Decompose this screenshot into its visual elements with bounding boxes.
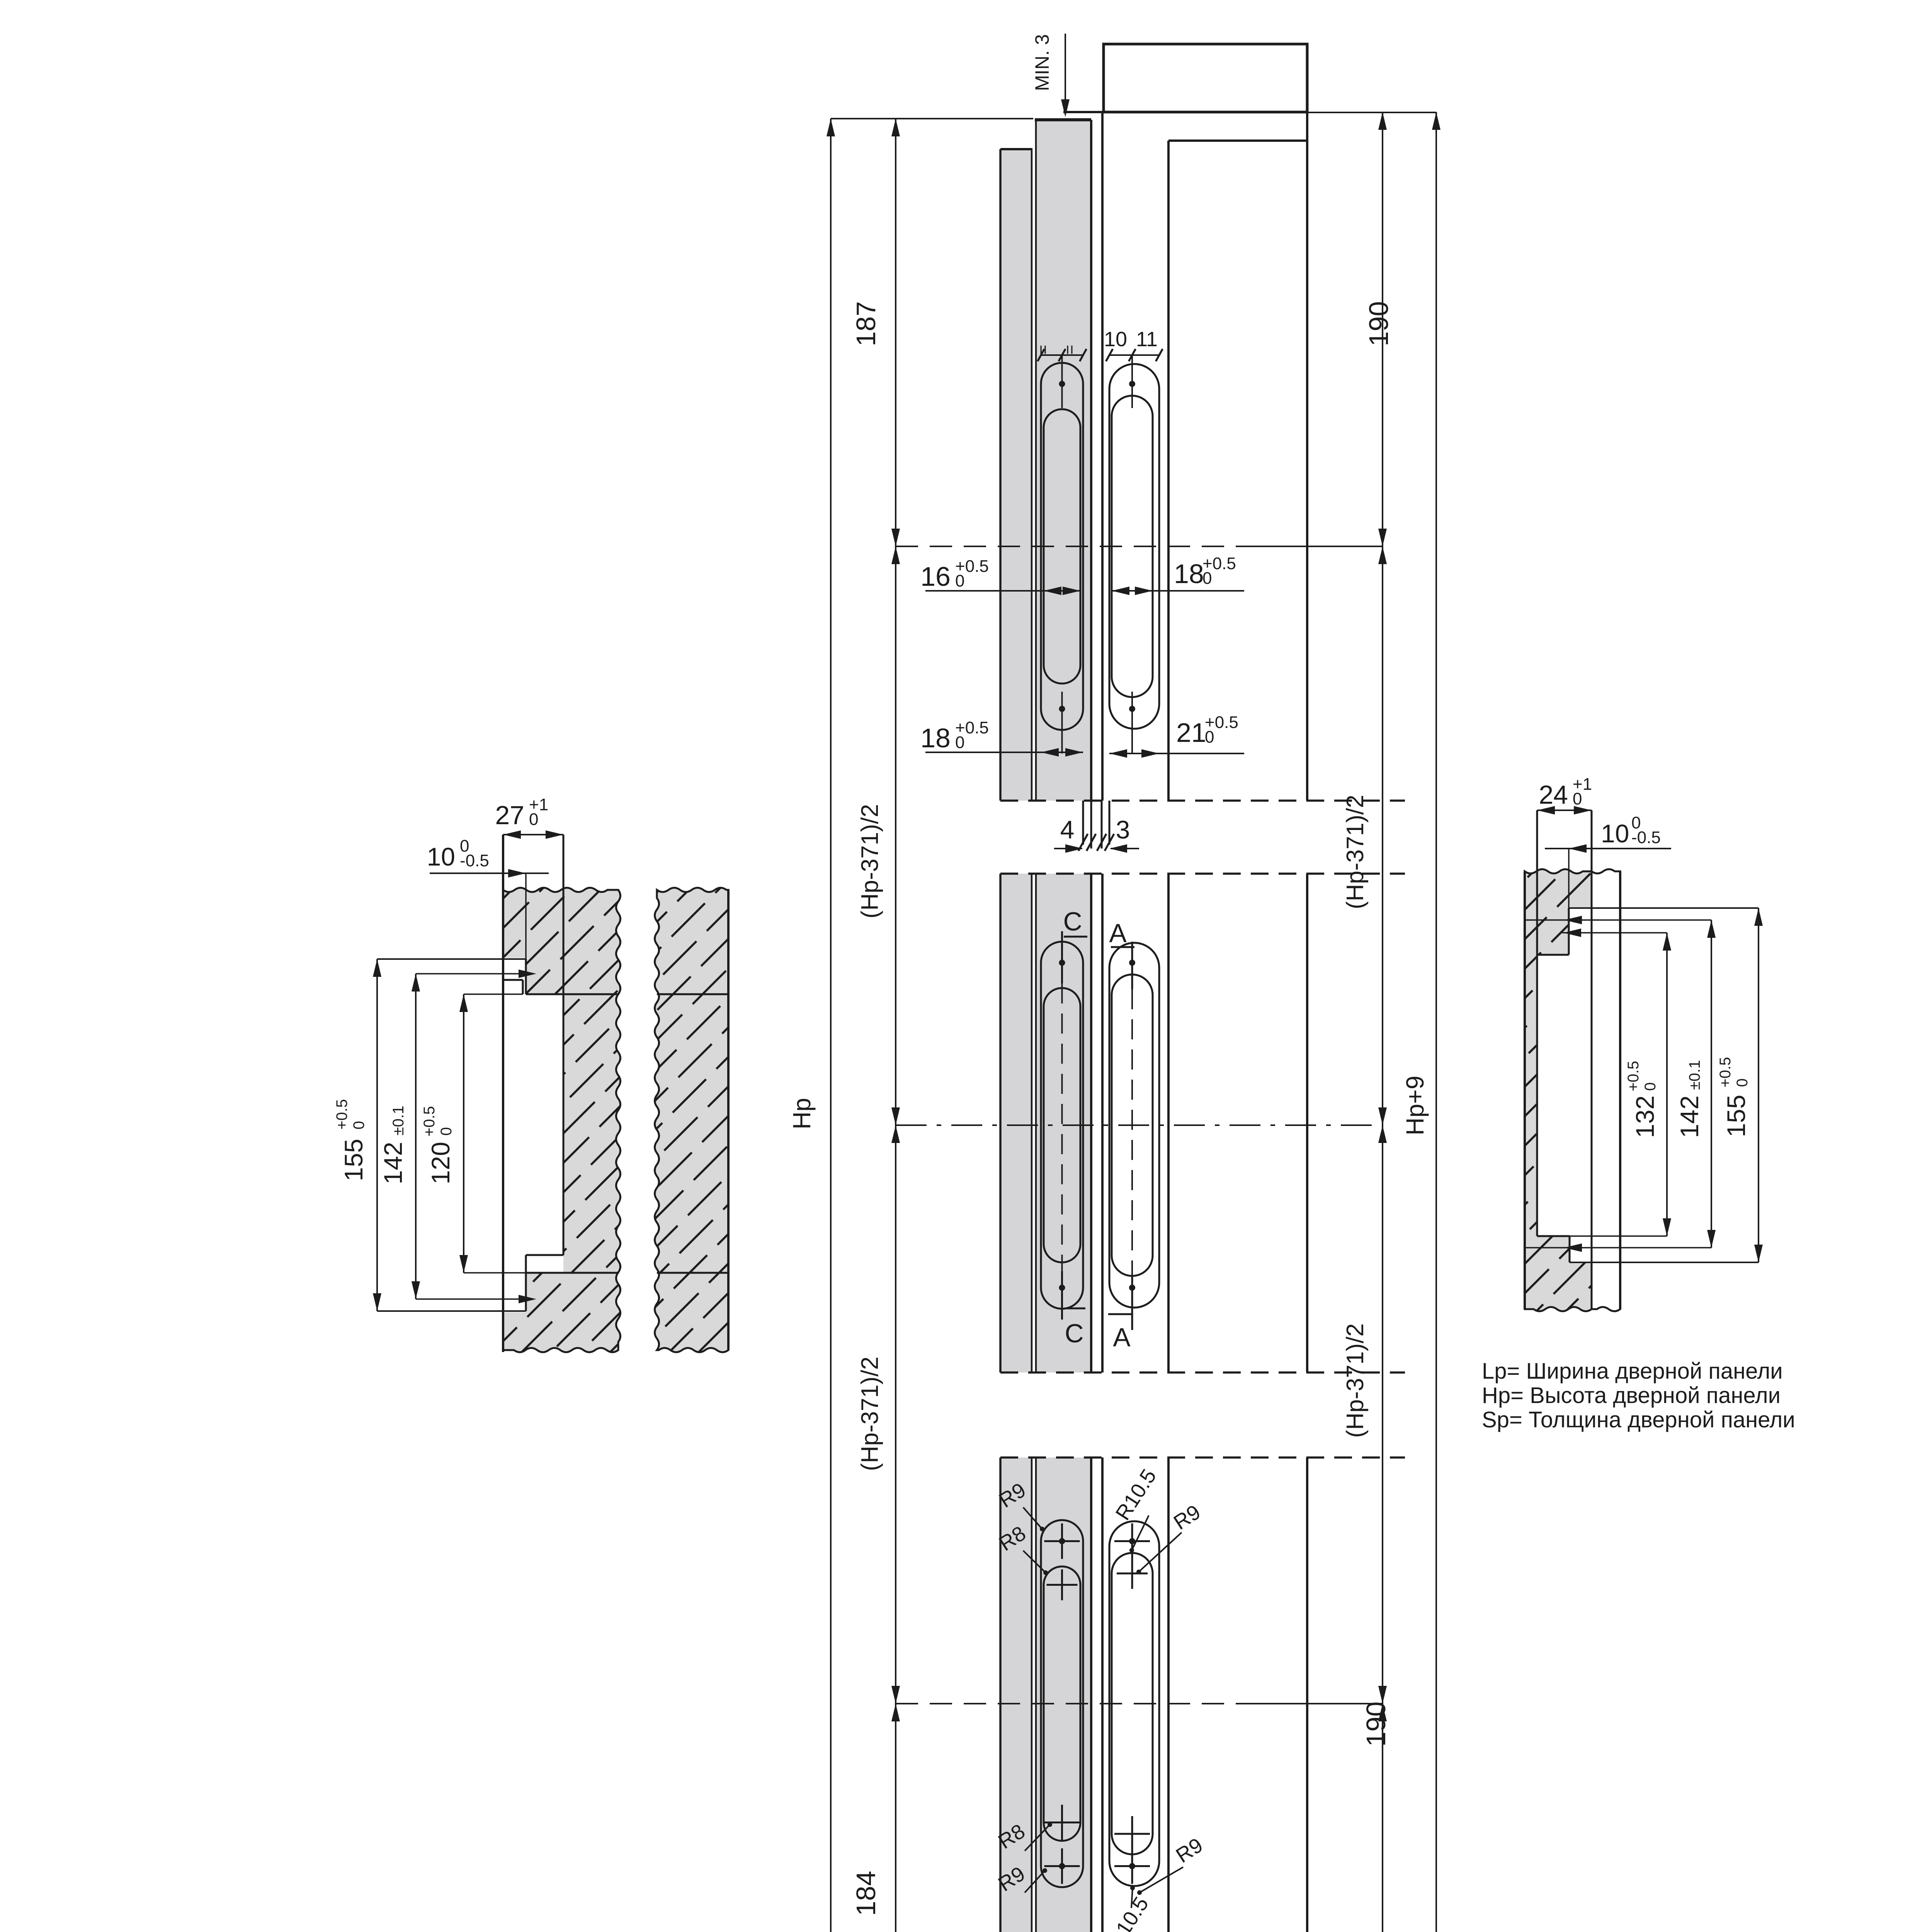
svg-text:27: 27 xyxy=(495,801,524,830)
svg-text:0: 0 xyxy=(955,733,964,752)
svg-text:120: 120 xyxy=(426,1142,455,1184)
svg-text:(Hp-371)/2: (Hp-371)/2 xyxy=(1342,795,1369,909)
svg-text:0: 0 xyxy=(1734,1078,1751,1087)
svg-text:Lp= Ширина дверной панели: Lp= Ширина дверной панели xyxy=(1482,1359,1783,1384)
svg-text:18: 18 xyxy=(920,723,951,753)
svg-text:142: 142 xyxy=(379,1142,407,1184)
svg-text:0: 0 xyxy=(1642,1082,1659,1091)
svg-text:155: 155 xyxy=(1722,1095,1750,1137)
svg-text:Sp= Толщина дверной панели: Sp= Толщина дверной панели xyxy=(1482,1407,1795,1432)
svg-text:+0.5: +0.5 xyxy=(1717,1057,1734,1088)
svg-text:-0.5: -0.5 xyxy=(1631,828,1661,847)
svg-text:MIN. 3: MIN. 3 xyxy=(1031,34,1053,91)
svg-text:142: 142 xyxy=(1675,1095,1704,1138)
svg-text:11: 11 xyxy=(1136,328,1158,351)
svg-text:±0.1: ±0.1 xyxy=(390,1105,407,1136)
svg-text:A: A xyxy=(1109,918,1127,948)
svg-text:Hp= Высота дверной панели: Hp= Высота дверной панели xyxy=(1482,1383,1781,1408)
svg-text:±0.1: ±0.1 xyxy=(1686,1060,1703,1090)
svg-text:155: 155 xyxy=(339,1139,368,1181)
svg-text:0: 0 xyxy=(529,810,538,829)
svg-text:C: C xyxy=(1065,1319,1083,1348)
svg-text:0: 0 xyxy=(1205,728,1214,747)
svg-text:190: 190 xyxy=(1361,1702,1391,1747)
svg-text:0: 0 xyxy=(438,1127,455,1136)
svg-text:=: = xyxy=(1060,345,1079,355)
svg-text:-0.5: -0.5 xyxy=(460,851,489,870)
svg-text:24: 24 xyxy=(1539,780,1568,810)
svg-text:(Hp-371)/2: (Hp-371)/2 xyxy=(1342,1323,1369,1438)
svg-text:=: = xyxy=(1034,345,1053,355)
svg-text:4: 4 xyxy=(1060,815,1075,844)
svg-text:0: 0 xyxy=(1202,569,1212,588)
svg-text:0: 0 xyxy=(955,571,964,590)
svg-text:21: 21 xyxy=(1176,718,1206,748)
svg-text:A: A xyxy=(1113,1323,1131,1352)
svg-text:+0.5: +0.5 xyxy=(1625,1061,1642,1092)
svg-text:(Hp-371)/2: (Hp-371)/2 xyxy=(857,804,883,918)
svg-text:+0.5: +0.5 xyxy=(333,1099,350,1130)
svg-text:(Hp-371)/2: (Hp-371)/2 xyxy=(857,1357,883,1471)
svg-text:3: 3 xyxy=(1116,815,1130,844)
svg-text:132: 132 xyxy=(1631,1095,1659,1138)
svg-text:Hp+9: Hp+9 xyxy=(1401,1076,1429,1136)
svg-text:Hp: Hp xyxy=(788,1098,816,1129)
svg-text:10: 10 xyxy=(427,842,455,871)
svg-text:184: 184 xyxy=(851,1871,881,1916)
svg-text:190: 190 xyxy=(1364,301,1394,347)
svg-text:0: 0 xyxy=(350,1121,367,1129)
svg-text:0: 0 xyxy=(1573,789,1582,808)
svg-text:187: 187 xyxy=(851,301,881,347)
svg-text:10: 10 xyxy=(1601,819,1629,848)
svg-text:+0.5: +0.5 xyxy=(421,1106,438,1137)
svg-text:16: 16 xyxy=(920,561,951,592)
svg-text:C: C xyxy=(1063,907,1082,936)
svg-text:10: 10 xyxy=(1104,328,1127,351)
svg-text:18: 18 xyxy=(1174,559,1204,589)
